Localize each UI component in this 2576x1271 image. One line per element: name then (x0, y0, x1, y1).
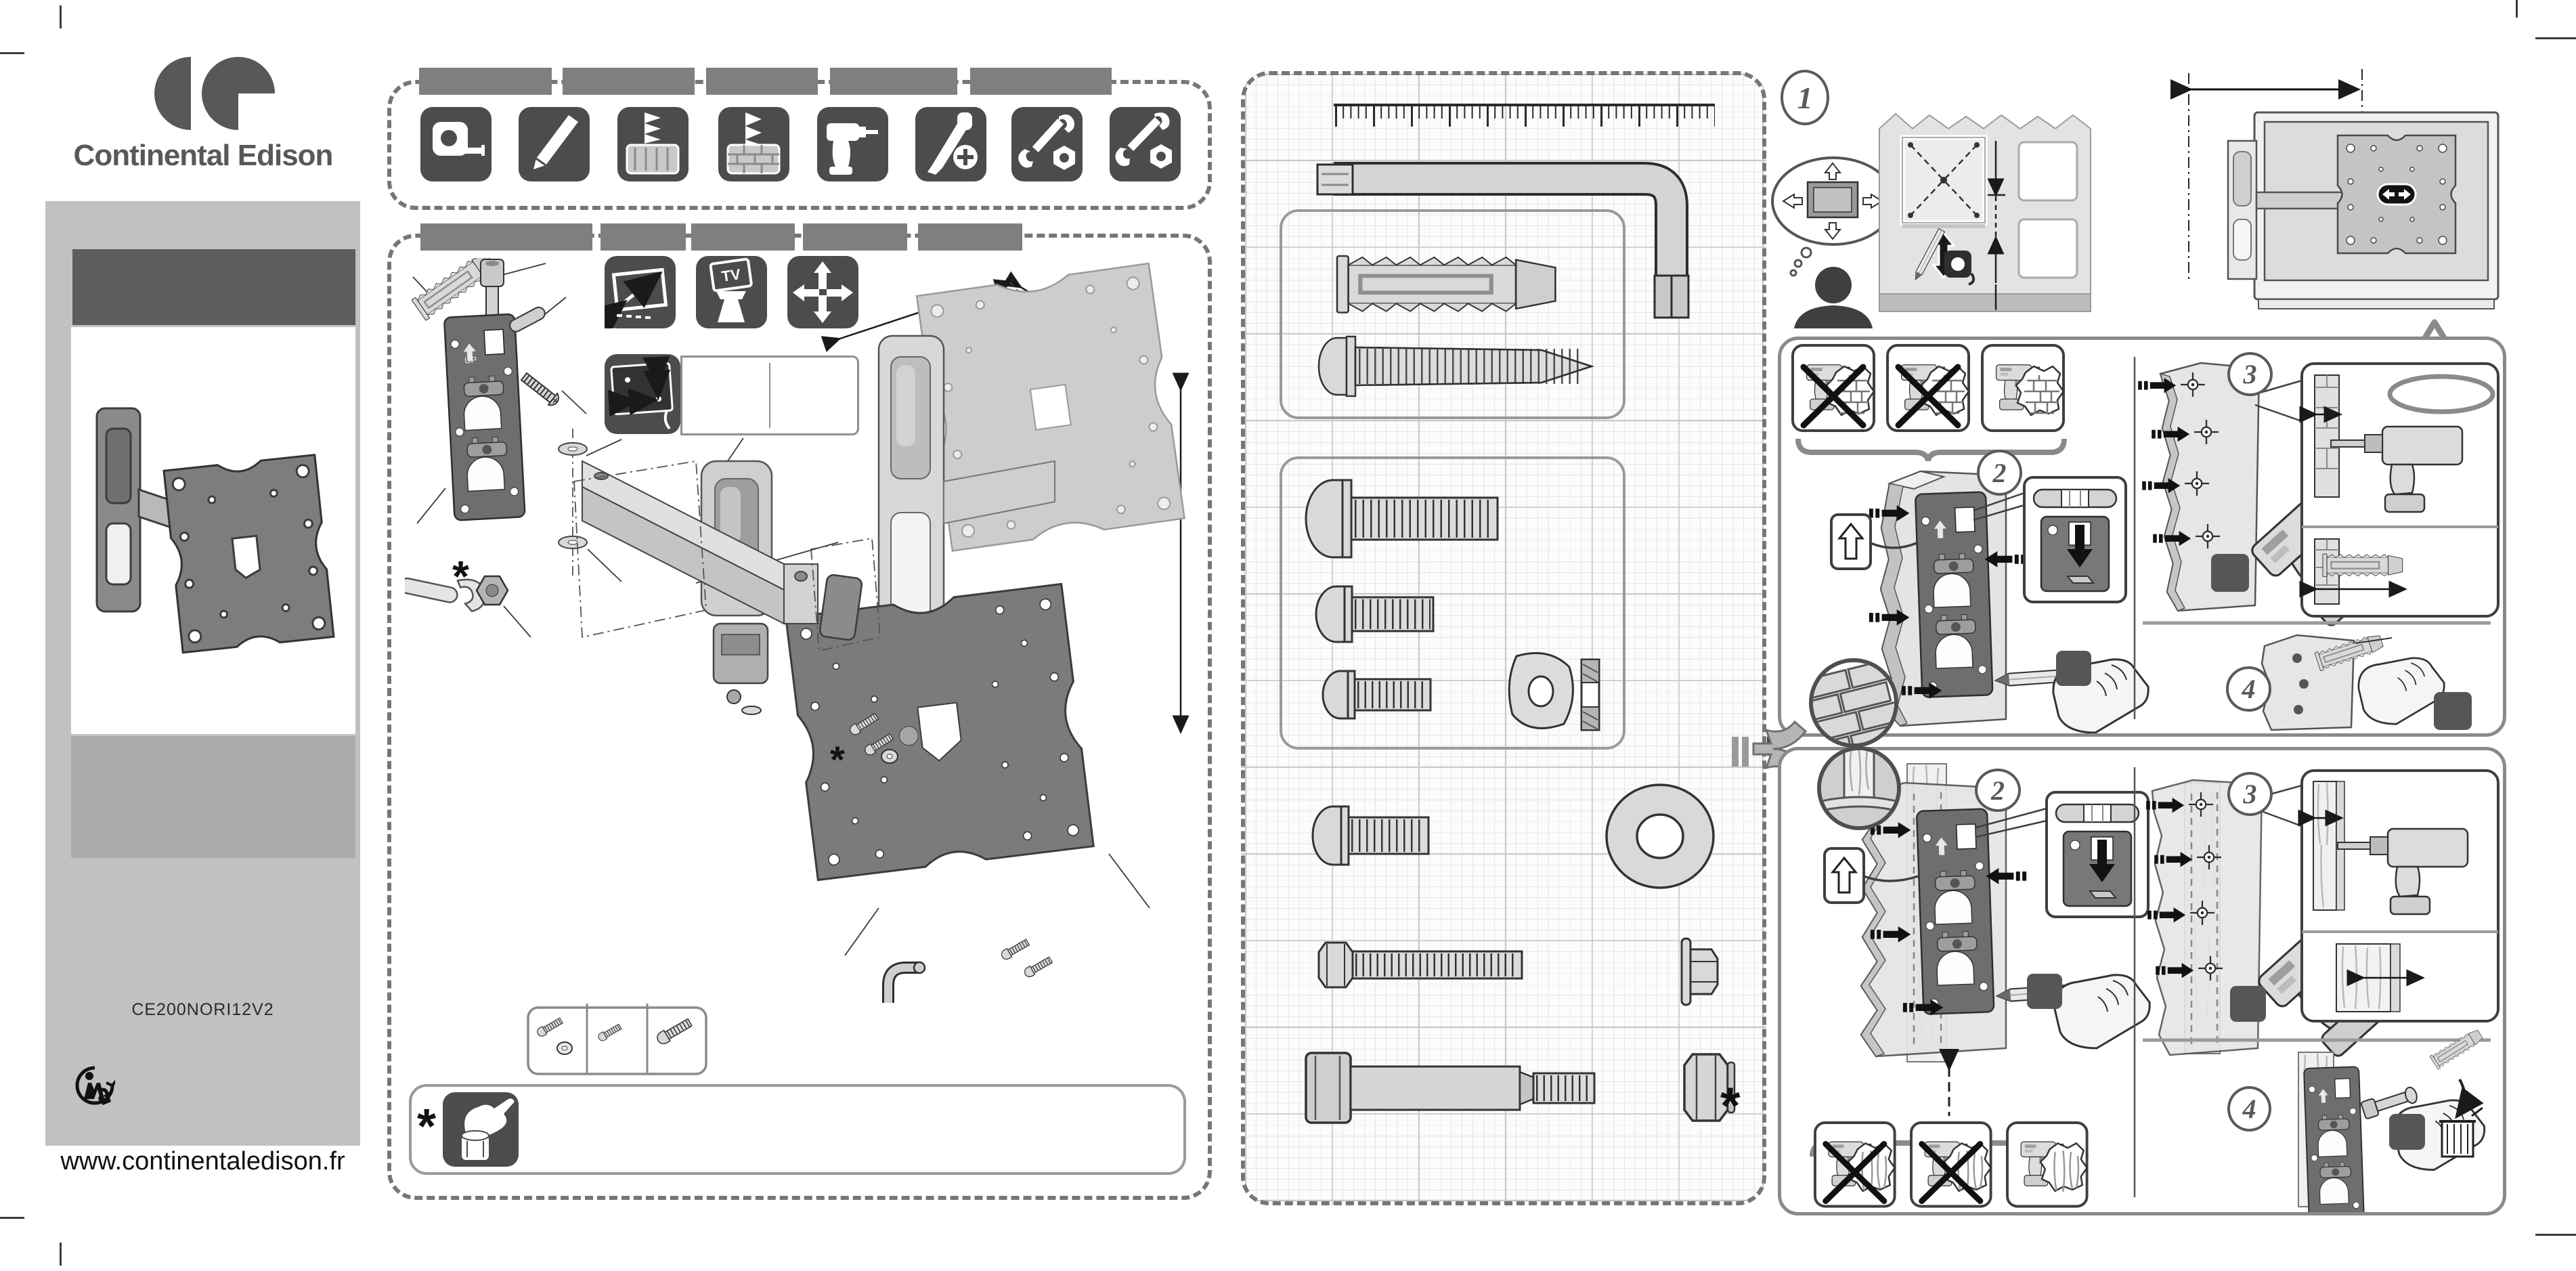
open-wrench (405, 565, 488, 613)
brand-logo (115, 53, 291, 134)
hardware-key-swatch (2027, 974, 2062, 1009)
wall-anchor (1337, 256, 1555, 313)
extension-arm (582, 461, 818, 624)
hardware-key-swatch (2056, 651, 2091, 686)
drill-depth-callout (2255, 364, 2498, 616)
brand-website: www.continentaledison.fr (45, 1147, 360, 1176)
step-number: 2 (1991, 775, 2005, 806)
ruler (1334, 105, 1715, 116)
language-tab (803, 223, 907, 251)
language-tab (830, 68, 957, 95)
step-4-badge: 4 (2226, 666, 2271, 712)
bolt-m6 (1313, 806, 1428, 865)
step-4-badge-wood: 4 (2227, 1086, 2271, 1132)
model-number: CE200NORI12V2 (45, 1000, 360, 1020)
cover-subband (71, 736, 355, 858)
tv-rear-scene (2163, 60, 2508, 330)
assembly-overview-panel: TV (387, 234, 1212, 1200)
screw-length-selector (527, 1004, 707, 1076)
washer-large (1607, 785, 1713, 888)
step-3-badge-wood: 3 (2227, 772, 2273, 816)
language-tab (601, 223, 686, 251)
crop-mark (0, 1217, 24, 1219)
vesa-plate (2338, 135, 2455, 253)
arm-end-cap (819, 574, 863, 641)
language-tab (420, 223, 592, 251)
step-3-badge: 3 (2227, 352, 2273, 396)
required-tools-panel (387, 80, 1212, 210)
step-number: 1 (1797, 80, 1813, 116)
shoulder-bolt (1306, 1053, 1594, 1123)
language-tab (563, 68, 695, 95)
hand-tighten-note: * (409, 1084, 1186, 1175)
crop-mark (0, 52, 24, 54)
masonry-drill-bit-icon (718, 107, 789, 181)
language-tab (691, 223, 795, 251)
washer-upper (559, 443, 587, 455)
brace (1798, 439, 2064, 460)
hardware-parts-panel: * (1241, 71, 1766, 1205)
wall-marking-scene (1875, 100, 2099, 322)
language-tab (706, 68, 818, 95)
step-number: 4 (2243, 1093, 2256, 1125)
crop-mark (60, 1243, 62, 1266)
language-tab (918, 223, 1022, 251)
warning-thumbnails-wood (1815, 1123, 2087, 1206)
warning-thumbnails (1793, 345, 2064, 460)
wood-screw (1319, 337, 1592, 396)
crop-mark (2535, 1234, 2576, 1236)
flange-nut (1682, 939, 1718, 1005)
hex-bolt (1319, 943, 1522, 987)
washer-lower (559, 536, 587, 548)
bolt-long (1306, 480, 1498, 557)
washer-small (1509, 653, 1599, 730)
phillips-screwdriver-icon (915, 107, 986, 181)
wall-opening (2019, 219, 2077, 278)
asterisk: * (417, 1099, 436, 1155)
hand-tighten-icon (443, 1092, 519, 1167)
hardware-key-swatch (2389, 1114, 2425, 1150)
manual-page: Continental Edison (0, 0, 2576, 1271)
brand-name: Continental Edison (41, 139, 366, 173)
bolt-short (1323, 671, 1431, 718)
hardware-key-swatch (2211, 554, 2249, 592)
step-number: 2 (1993, 457, 2007, 489)
bolt-medium (1316, 586, 1433, 642)
baseboard (1879, 294, 2091, 311)
open-end-wrench-icon (1011, 107, 1083, 181)
brand-logo-mark (154, 57, 278, 133)
step4-insert-anchor (2262, 632, 2444, 730)
step-1-badge: 1 (1781, 70, 1829, 125)
box-wrench-icon (1110, 107, 1181, 181)
hardware-key-swatch (2434, 692, 2472, 730)
step-number: 3 (2244, 358, 2257, 390)
product-photo-box (71, 327, 355, 734)
crop-mark (60, 5, 62, 28)
step3-drill-holes-wood (2146, 771, 2498, 1064)
wall-opening (2019, 142, 2077, 200)
step-2-badge-wood: 2 (1975, 769, 2021, 812)
axle-pin (508, 305, 547, 334)
small-screw-pair (1000, 938, 1053, 978)
language-tab (970, 68, 1112, 95)
triman-recycle-icon (74, 1065, 115, 1108)
asterisk: * (830, 738, 845, 781)
allen-key-small (888, 962, 925, 1003)
power-drill-icon (817, 107, 888, 181)
brick-wall-inset (1809, 658, 1898, 748)
asterisk: * (1720, 1077, 1741, 1135)
step-number: 4 (2242, 673, 2256, 705)
step-2-badge: 2 (1977, 450, 2022, 496)
marked-area (1902, 137, 1985, 226)
wood-stud-inset (1817, 746, 1901, 830)
exploded-assembly-diagram: UP * (405, 258, 1196, 1003)
step3-drill-holes (2138, 363, 2498, 633)
crop-mark (2516, 0, 2518, 18)
wood-drill-bit-icon (617, 107, 689, 181)
language-tab (419, 68, 552, 95)
wall-bracket-exploded (444, 314, 525, 521)
pan-head-screw (520, 371, 563, 408)
crop-mark (2535, 37, 2576, 39)
product-photo (71, 327, 355, 733)
step-number: 3 (2244, 778, 2257, 810)
pencil-icon (519, 107, 590, 181)
cover-panel: CE200NORI12V2 (45, 201, 360, 1146)
asterisk: * (452, 552, 469, 601)
trash-bin-icon (2442, 1121, 2473, 1157)
up-marking: UP (464, 355, 477, 366)
cover-title-band (72, 249, 355, 325)
hardware-key-swatch (2230, 986, 2266, 1022)
tilt-clamp (714, 624, 768, 714)
tape-measure-icon (420, 107, 492, 181)
